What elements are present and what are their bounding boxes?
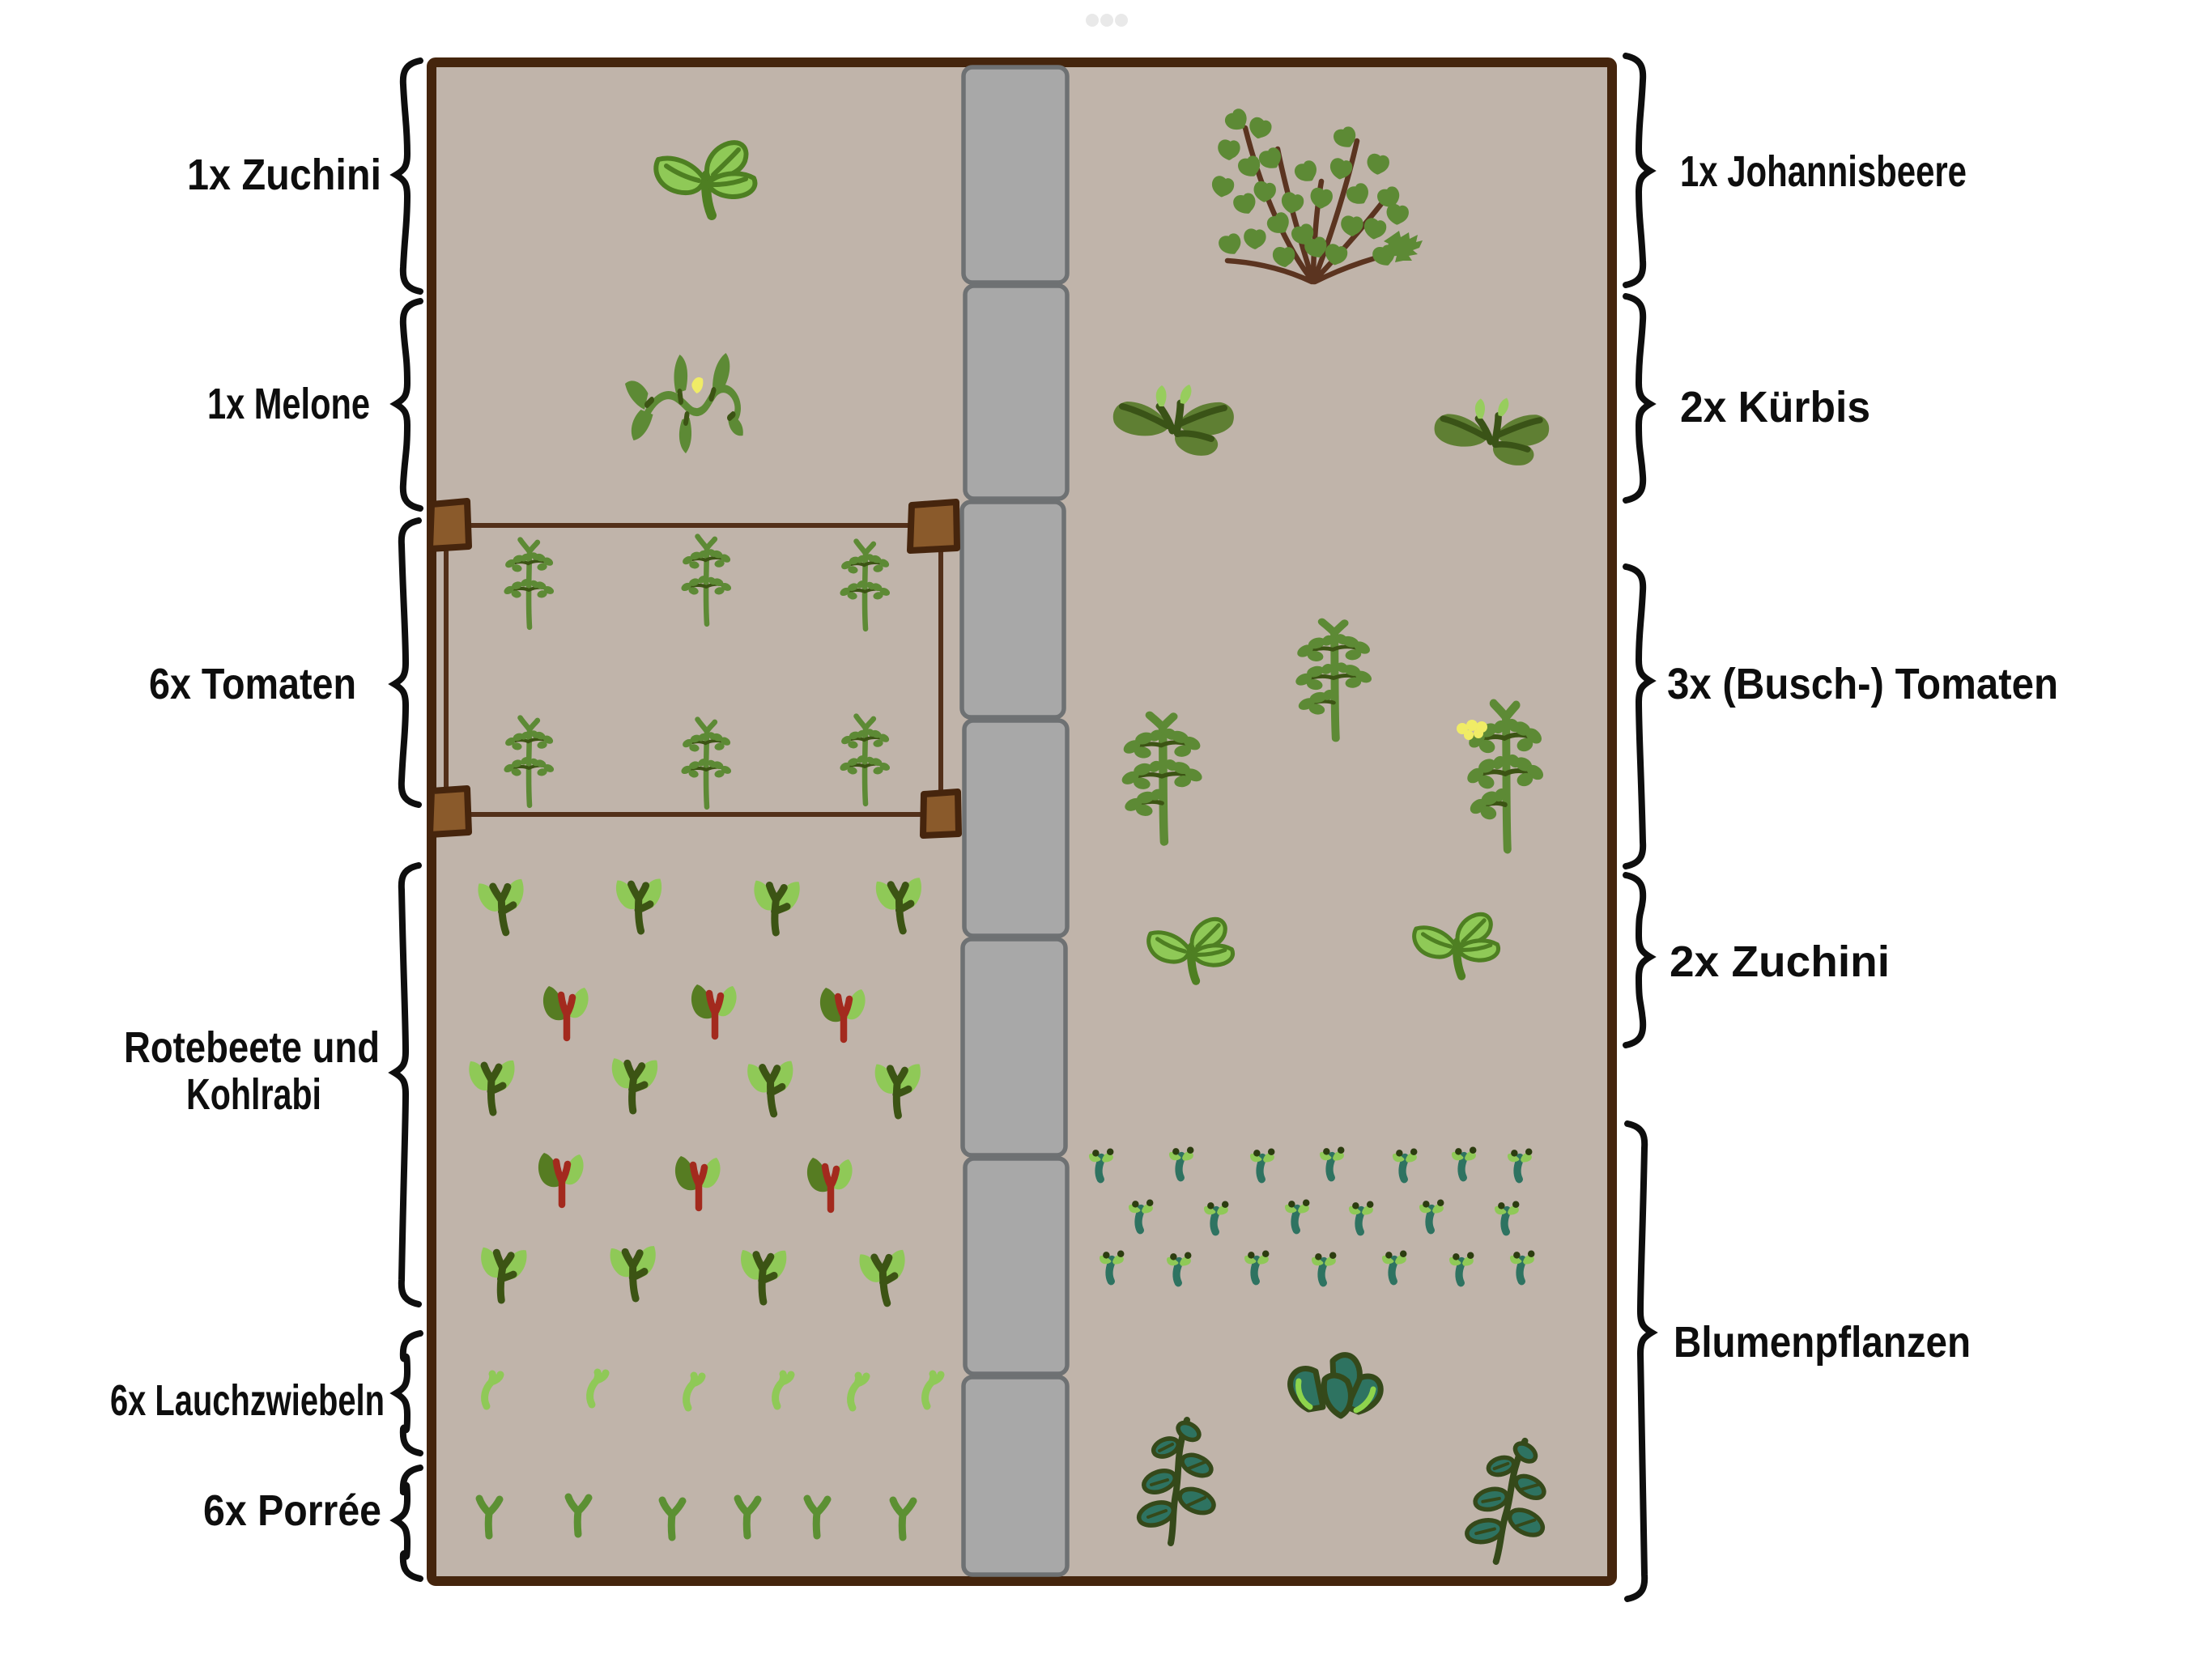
svg-text:2x Kürbis: 2x Kürbis bbox=[1680, 383, 1870, 432]
svg-text:1x Melone: 1x Melone bbox=[207, 380, 370, 428]
svg-text:6x Lauchzwiebeln: 6x Lauchzwiebeln bbox=[110, 1376, 385, 1425]
svg-text:Rotebeete und: Rotebeete und bbox=[124, 1023, 380, 1072]
svg-text:2x Zuchini: 2x Zuchini bbox=[1670, 937, 1890, 986]
svg-text:Blumenpflanzen: Blumenpflanzen bbox=[1674, 1318, 1971, 1367]
svg-text:6x Porrée: 6x Porrée bbox=[203, 1486, 381, 1535]
svg-text:6x Tomaten: 6x Tomaten bbox=[149, 660, 356, 708]
svg-text:1x Johannisbeere: 1x Johannisbeere bbox=[1680, 147, 1967, 196]
svg-text:Kohlrabi: Kohlrabi bbox=[186, 1070, 321, 1119]
svg-text:1x Zuchini: 1x Zuchini bbox=[187, 151, 381, 199]
svg-text:3x (Busch-) Tomaten: 3x (Busch-) Tomaten bbox=[1667, 660, 2058, 708]
